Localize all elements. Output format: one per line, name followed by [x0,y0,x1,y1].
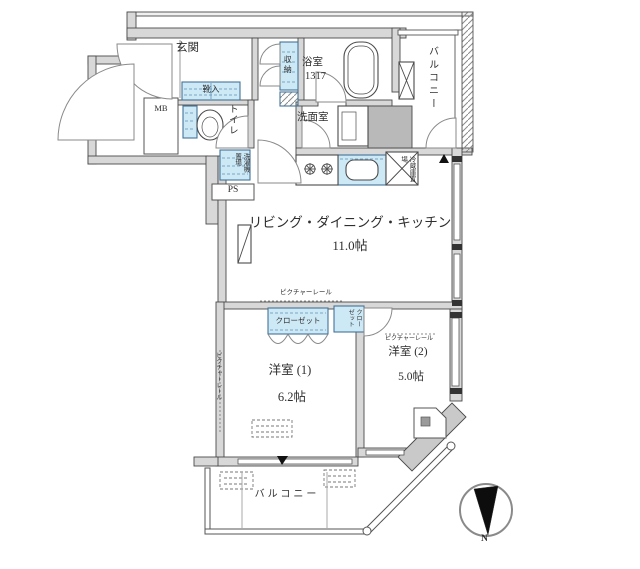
balcony-dashed-box-1 [220,472,253,489]
compass-icon [460,484,512,536]
top-wall [127,28,406,38]
room2-door-arc [364,308,392,336]
diagonal-column [414,408,446,438]
room2-label: 洋室 (2) [372,346,444,359]
hatched-boundary-wall [462,12,473,152]
hall-ldk-door-arc [258,140,301,183]
bathtub-inner [348,46,374,94]
bathroom-label: 浴室 [302,57,323,69]
storage-door-arc-1 [260,44,280,64]
ldk-label: リビング・ダイニング・キッチン [240,215,460,231]
balcony-door-arc [426,118,456,148]
room1-dashed-box [252,420,292,437]
balcony-lower-label: バルコニー [232,489,342,501]
entrance-door-arc-2 [58,64,134,140]
kitchen-sink [346,160,378,180]
balcony-upper-label: バルコニー [426,46,438,111]
pipe-shaft [368,106,412,148]
kitchen-top-wall [296,148,472,155]
room2-size-label: 5.0帖 [382,371,440,384]
floorplan-drawing [0,0,640,569]
hall-right-wall [296,102,302,148]
meter-box-label: MB [146,104,176,114]
bathroom-size-label: 1317 [305,71,326,83]
bath-bottom-wall-b [346,100,392,106]
balcony-top-wall [398,30,458,35]
washroom-label: 洗面室 [297,112,329,124]
railing-bottom [205,529,367,534]
ldk-picture-rail-label: ピクチャーレール [280,289,332,296]
bath-left-wall [298,38,304,102]
entrance-bottom-wall [88,156,208,164]
dashed-boxes [220,420,355,489]
balcony-left-step-wall [194,457,218,466]
room1-picture-rail-label: ピクチャーレール [214,352,221,400]
shoe-cabinet-label: 靴入 [182,85,240,95]
entrance-label: 玄関 [176,42,199,55]
room1-label: 洋室 (1) [240,363,340,377]
compass-north-label: N [481,534,488,545]
top-outer-line [128,12,473,16]
room2-picture-rail-label: ピクチャーレール [385,336,433,343]
small-closet-label: クローゼット [337,309,361,330]
railing-left [205,468,210,534]
hall-left-wall [248,100,254,148]
bath-bottom-wall-a [298,100,318,106]
room1-size-label: 6.2帖 [250,390,334,404]
panel-box [280,92,298,106]
balcony-dashed-box-2 [324,470,355,487]
floorplan-canvas: 玄関 靴入 MB トイレ 収納 浴室 1317 洗面室 バルコニー 洗濯機置場 … [0,0,640,569]
railing-joint-1 [363,527,371,535]
washroom-door-arc [302,120,330,148]
room1-balcony-window [238,459,352,464]
storage-label: 収納 [283,55,292,75]
entrance-right-wall [252,38,258,100]
toilet-label: トイレ [226,104,237,136]
washer-place-label: 洗濯機置場 [222,153,249,178]
vanity-basin [342,112,356,140]
closet-label: クローゼット [268,317,328,326]
ldk-size-label: 11.0帖 [290,239,410,254]
closet-folding-doors [268,334,328,344]
toilet-top-wall [178,100,254,105]
pipe-space-label: PS [212,185,254,196]
railing-joint-2 [447,442,455,450]
storage-door-arc-2 [260,66,280,86]
toilet-bowl-inner [202,117,218,137]
fridge-place-label: 冷蔵庫置場 [390,156,415,182]
toilet-cistern [183,106,197,138]
room2-balcony-window [366,450,404,455]
